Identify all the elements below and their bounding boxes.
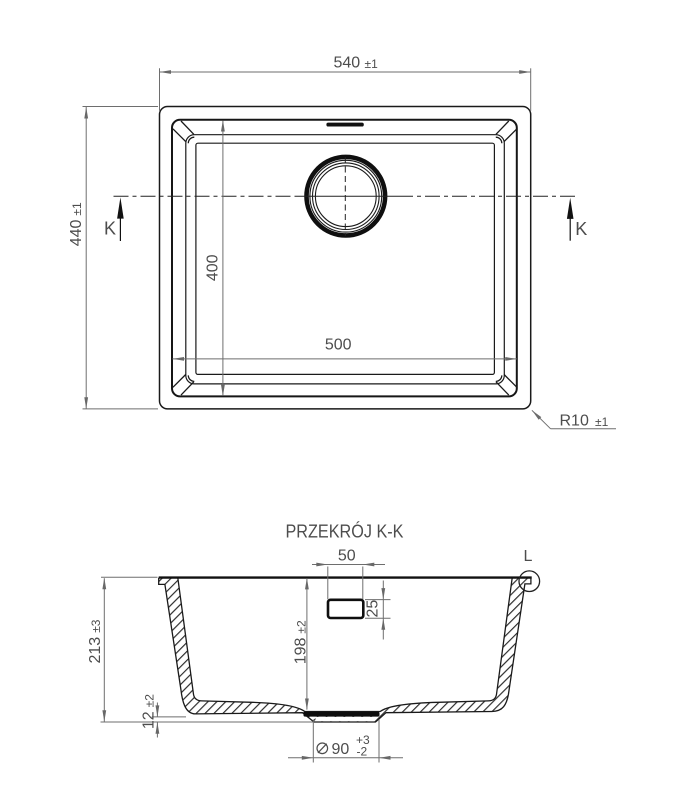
svg-text:50: 50 <box>338 547 356 564</box>
svg-text:25: 25 <box>365 600 382 618</box>
svg-text:540: 540 <box>334 54 361 71</box>
svg-text:PRZEKRÓJ K-K: PRZEKRÓJ K-K <box>286 521 404 542</box>
svg-text:400: 400 <box>205 254 222 281</box>
svg-text:-2: -2 <box>357 744 368 758</box>
svg-text:500: 500 <box>325 337 352 354</box>
svg-text:K: K <box>575 219 587 239</box>
svg-text:198±2: 198±2 <box>293 620 310 664</box>
svg-text:90: 90 <box>332 741 350 758</box>
svg-text:213±3: 213±3 <box>87 619 104 663</box>
svg-text:12±2: 12±2 <box>141 694 158 729</box>
svg-text:440±1: 440±1 <box>68 202 85 246</box>
svg-text:R10: R10 <box>560 412 589 429</box>
svg-text:±1: ±1 <box>365 57 379 71</box>
svg-text:L: L <box>524 548 533 565</box>
svg-text:±1: ±1 <box>595 415 609 429</box>
svg-text:K: K <box>104 218 116 238</box>
